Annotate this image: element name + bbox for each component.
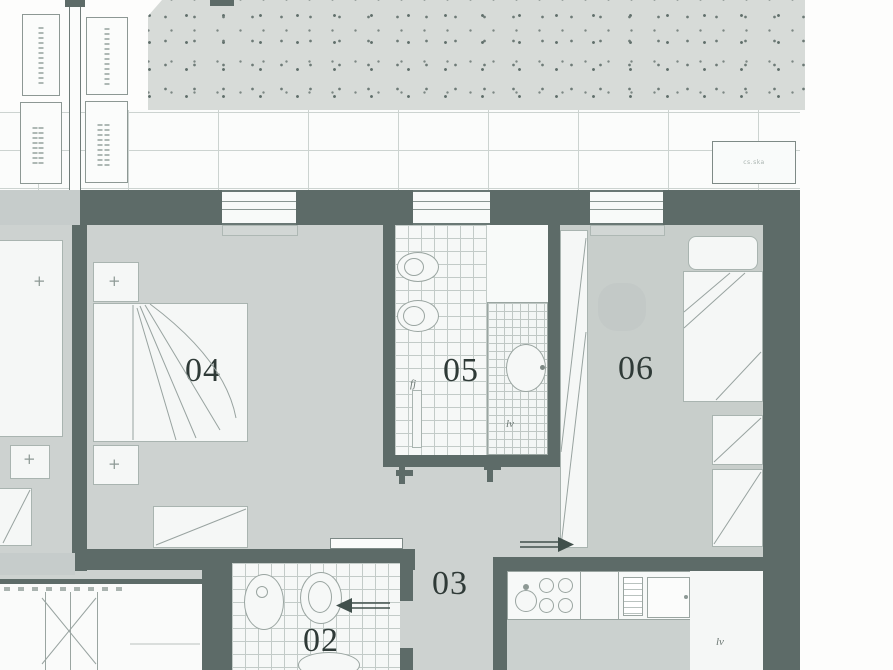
room04-double-bed xyxy=(93,303,248,442)
bath02-toilet xyxy=(244,574,284,630)
schedule-box xyxy=(85,101,128,183)
bath05-fj-label: fj xyxy=(410,378,416,390)
party-wall xyxy=(72,225,87,571)
bath05-counter-area xyxy=(487,225,548,302)
window-bath05 xyxy=(413,190,490,225)
counter-joint xyxy=(580,571,581,620)
bath02-wall-right xyxy=(400,549,413,601)
terrace-gravel-area xyxy=(148,0,805,110)
bath05-lv-label: lv xyxy=(506,418,514,430)
floor-plan: cs.ska + + + + 04 fj lv 05 xyxy=(0,0,893,670)
stove-burner xyxy=(558,598,573,613)
room-label-06: 06 xyxy=(618,350,654,388)
door-jamb xyxy=(487,462,493,482)
door-jamb xyxy=(399,467,405,484)
wall-stub xyxy=(210,0,234,6)
neighbor-window-segment xyxy=(0,190,80,225)
room-label-02: 02 xyxy=(303,622,339,660)
kitchen-tap xyxy=(523,584,529,590)
closet-strip xyxy=(560,230,588,548)
schedule-box xyxy=(20,102,62,184)
oven-knob xyxy=(684,595,688,599)
bath02-toilet-bowl xyxy=(256,586,268,598)
nightstand-cross: + xyxy=(108,455,121,473)
room06-wardrobe xyxy=(712,469,763,547)
bath05-wall-right xyxy=(548,225,560,467)
bath05-wall-left xyxy=(383,225,395,467)
neighbor-wall-segment xyxy=(0,553,75,575)
neighbor-bed xyxy=(0,240,63,437)
kitchen-white-area xyxy=(690,571,763,670)
kitchen-sink xyxy=(515,590,537,612)
stair-line xyxy=(97,592,98,670)
stair-line xyxy=(45,592,46,670)
exterior-wall xyxy=(296,190,413,225)
dimension-ticks xyxy=(4,587,124,591)
wall-stub xyxy=(65,0,85,7)
bath05-wall-bottom xyxy=(383,455,560,467)
exterior-wall xyxy=(490,190,590,225)
window-room04 xyxy=(222,190,296,225)
washbasin-tap xyxy=(540,365,545,370)
bath05-bidet-bowl xyxy=(404,258,424,276)
kitchen-wall-top xyxy=(493,557,763,571)
kitchen-floor xyxy=(507,620,690,670)
bath02-wall-left xyxy=(202,570,232,670)
window-room06 xyxy=(590,190,663,225)
room06-bed xyxy=(683,271,763,402)
nightstand-cross: + xyxy=(108,272,121,290)
bath02-wall-right xyxy=(400,648,413,670)
room-label-04: 04 xyxy=(185,352,221,390)
nightstand-cross: + xyxy=(33,272,46,290)
window-sill xyxy=(222,225,298,236)
room-label-05: 05 xyxy=(443,352,479,390)
terrace-tag-text: cs.ska xyxy=(743,159,765,166)
bath05-radiator xyxy=(412,390,422,448)
stair-line xyxy=(70,592,71,670)
room06-pouf xyxy=(598,283,646,331)
room06-wardrobe xyxy=(712,415,763,465)
schedule-box xyxy=(86,17,128,95)
kitchen-lv-label: lv xyxy=(716,636,724,648)
schedule-box xyxy=(22,14,60,96)
bath05-toilet-bowl xyxy=(403,306,425,326)
room-label-03: 03 xyxy=(432,565,468,603)
counter-joint xyxy=(618,571,619,620)
exterior-wall-right xyxy=(763,190,800,670)
terrace-divider-wall xyxy=(69,0,81,190)
bath02-bidet-bowl xyxy=(308,581,332,613)
window-sill xyxy=(590,225,665,236)
terrace-tag-box: cs.ska xyxy=(712,141,796,184)
neighbor-cabinet xyxy=(0,488,32,546)
stove-burner xyxy=(539,598,554,613)
nightstand-cross: + xyxy=(23,450,36,468)
lower-left-room xyxy=(0,584,202,670)
exterior-wall xyxy=(80,190,222,225)
room04-wardrobe xyxy=(153,506,248,548)
room06-pillow xyxy=(688,236,758,270)
stove-burner xyxy=(539,578,554,593)
stove-burner xyxy=(558,578,573,593)
bath02-door-leaf xyxy=(330,538,403,549)
kitchen-wall-left xyxy=(493,557,507,670)
kitchen-dishwasher xyxy=(623,577,643,616)
